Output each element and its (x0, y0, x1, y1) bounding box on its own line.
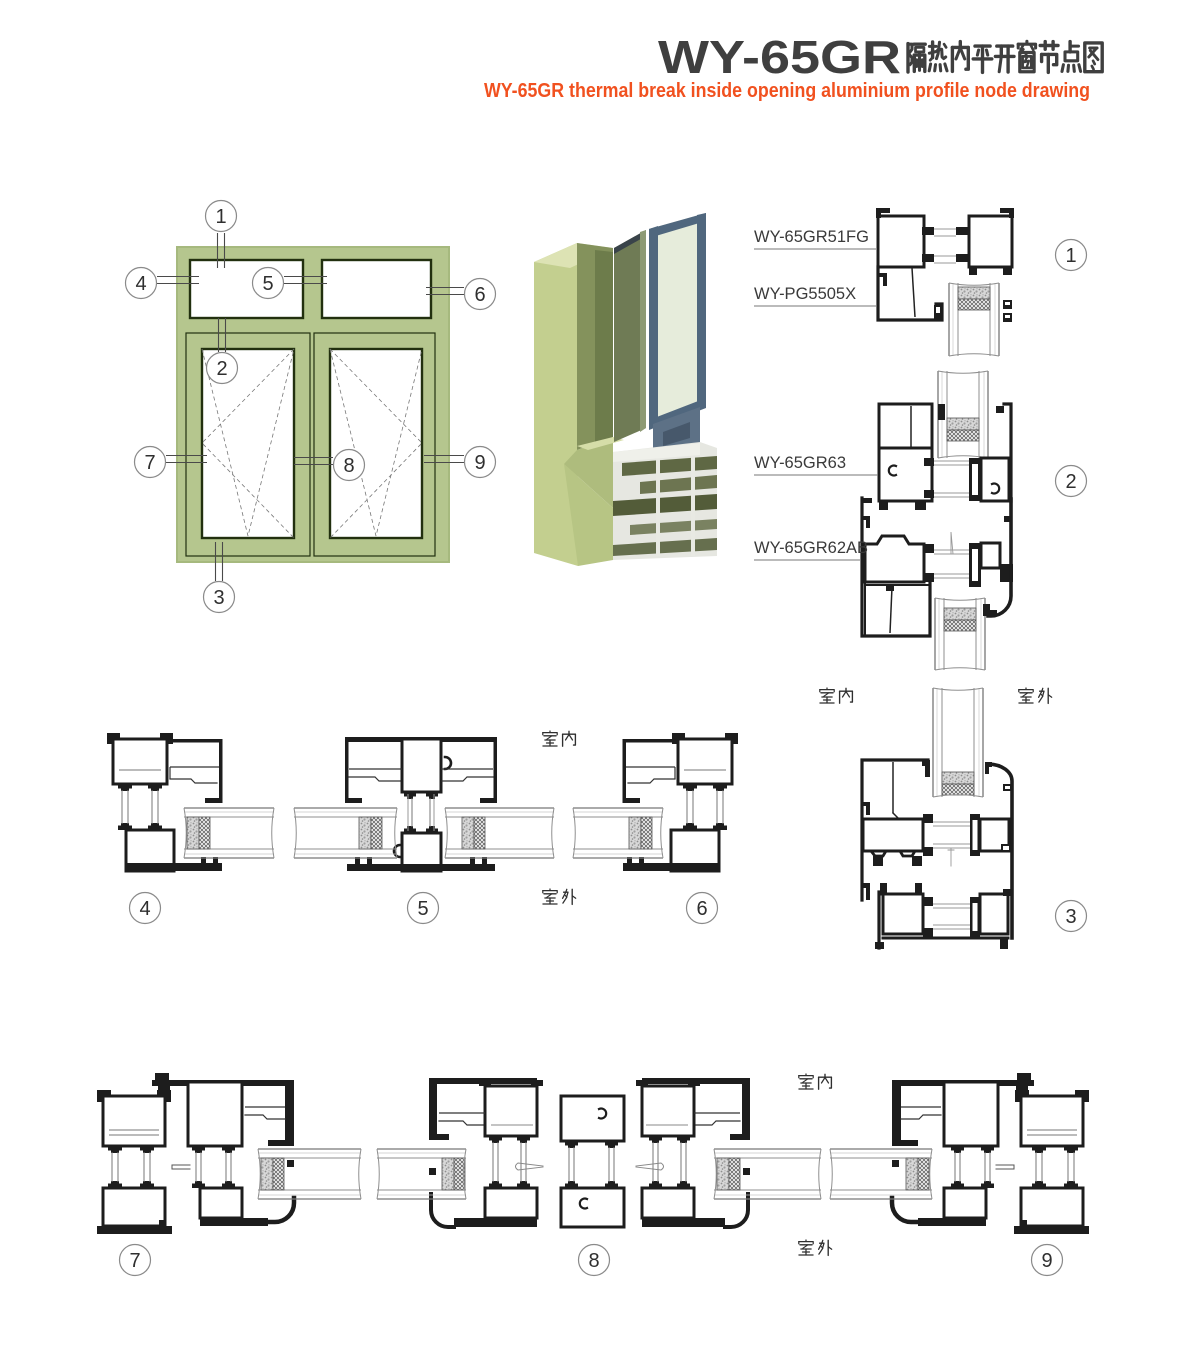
svg-text:WY-65GR thermal break inside o: WY-65GR thermal break inside opening alu… (484, 80, 1090, 102)
svg-text:7: 7 (144, 452, 155, 474)
svg-text:5: 5 (262, 273, 273, 295)
svg-text:6: 6 (474, 284, 485, 306)
svg-text:WY-65GR62AB: WY-65GR62AB (754, 539, 868, 557)
svg-text:5: 5 (417, 898, 428, 920)
svg-text:WY-PG5505X: WY-PG5505X (754, 285, 856, 303)
svg-text:9: 9 (1041, 1250, 1052, 1272)
svg-text:4: 4 (135, 273, 146, 295)
svg-text:7: 7 (129, 1250, 140, 1272)
svg-text:WY-65GR63: WY-65GR63 (754, 454, 846, 472)
svg-text:3: 3 (1065, 906, 1076, 928)
svg-text:1: 1 (1065, 245, 1076, 267)
svg-text:6: 6 (696, 898, 707, 920)
svg-text:1: 1 (215, 206, 226, 228)
svg-text:WY-65GR51FG: WY-65GR51FG (754, 228, 869, 246)
svg-text:8: 8 (343, 455, 354, 477)
svg-text:9: 9 (474, 452, 485, 474)
svg-text:WY-65GR: WY-65GR (658, 31, 901, 83)
svg-text:3: 3 (213, 587, 224, 609)
svg-text:8: 8 (588, 1250, 599, 1272)
svg-text:2: 2 (1065, 471, 1076, 493)
svg-text:2: 2 (216, 358, 227, 380)
svg-text:4: 4 (139, 898, 150, 920)
